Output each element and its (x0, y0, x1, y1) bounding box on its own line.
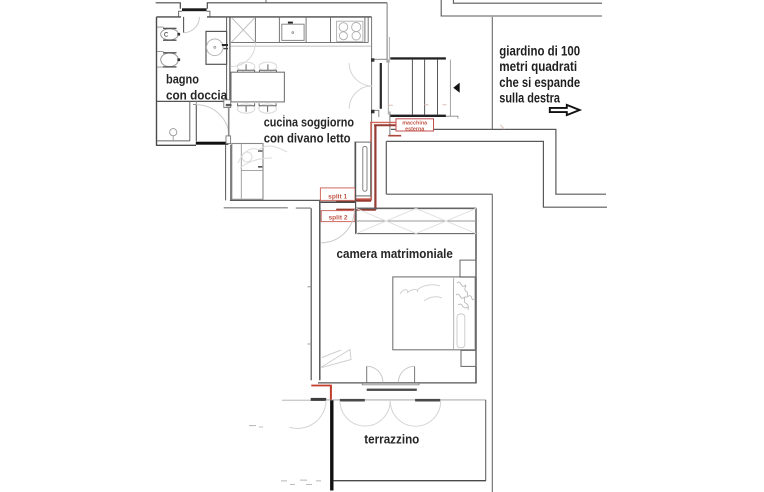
svg-text:split 1: split 1 (328, 193, 347, 200)
svg-text:cucina soggiorno: cucina soggiorno (264, 114, 354, 129)
svg-text:sulla destra: sulla destra (499, 90, 560, 105)
svg-text:che si espande: che si espande (499, 75, 580, 90)
svg-text:bagno: bagno (166, 71, 199, 86)
svg-text:split 2: split 2 (328, 215, 347, 222)
svg-text:camera matrimoniale: camera matrimoniale (337, 246, 453, 261)
svg-text:terrazzino: terrazzino (364, 432, 419, 447)
svg-text:con divano letto: con divano letto (264, 130, 351, 145)
svg-text:con doccia: con doccia (166, 87, 228, 102)
svg-text:giardino di 100: giardino di 100 (499, 43, 580, 58)
svg-text:metri quadrati: metri quadrati (499, 59, 577, 74)
svg-text:esterna: esterna (405, 126, 425, 132)
